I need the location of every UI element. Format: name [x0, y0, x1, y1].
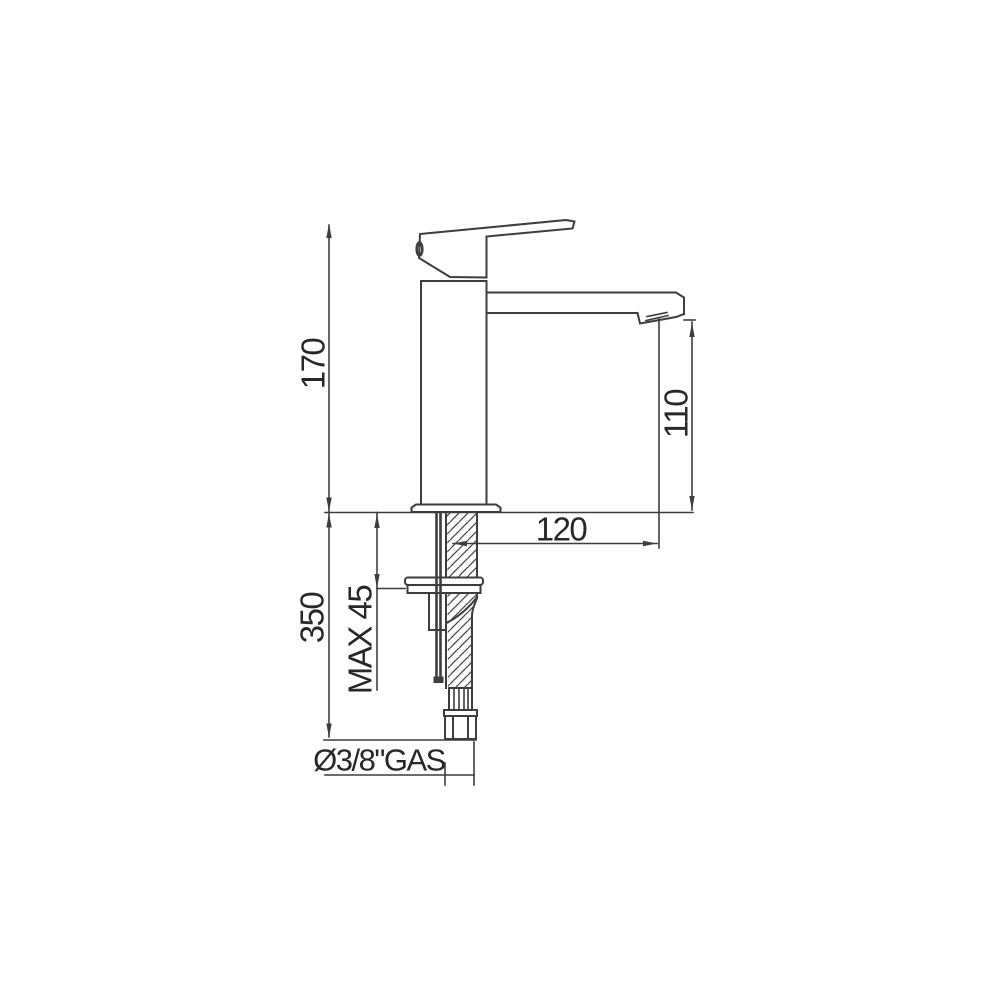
base-plate	[412, 505, 501, 513]
lever-handle	[417, 220, 575, 278]
drawing-canvas: 170 110 120 350 MAX 45 Ø3/8"GAS	[0, 0, 1000, 1000]
dim-label-supply-connection: Ø3/8"GAS	[313, 745, 445, 776]
faucet-technical-drawing	[0, 0, 1000, 1000]
dim-label-spout-reach: 120	[536, 513, 587, 546]
mounting-washer	[377, 578, 483, 594]
dim-label-overall-height: 170	[297, 339, 330, 390]
dim-line-170-350	[326, 224, 331, 738]
faucet-body	[412, 281, 501, 512]
dim-label-max-mounting-thickness: MAX 45	[344, 586, 377, 694]
hose-end-fitting	[444, 688, 477, 739]
dim-label-below-deck-length: 350	[296, 593, 329, 644]
dim-label-spout-height: 110	[660, 390, 693, 438]
hex-nut	[445, 716, 476, 739]
aerator-outlet	[638, 313, 685, 324]
threaded-shank-hose	[446, 512, 477, 688]
spout	[487, 293, 685, 324]
